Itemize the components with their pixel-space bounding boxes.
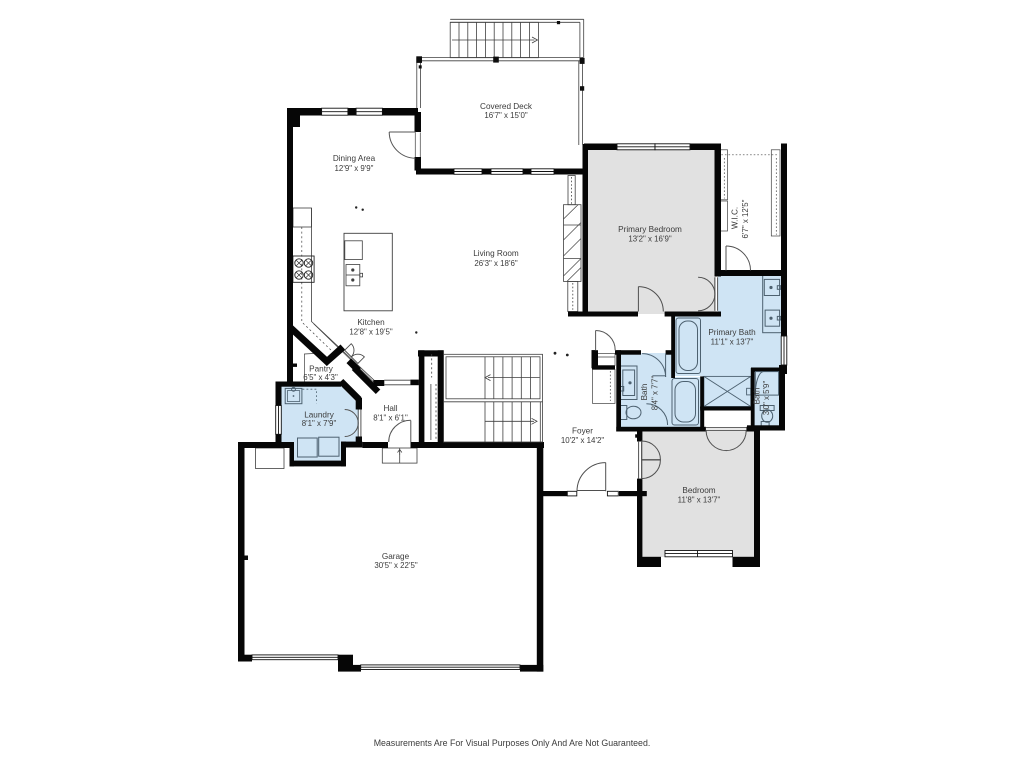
svg-text:Kitchen: Kitchen xyxy=(357,318,385,327)
svg-text:Bath: Bath xyxy=(640,383,649,400)
svg-text:8'1" x 7'9": 8'1" x 7'9" xyxy=(302,419,337,428)
svg-text:Hall: Hall xyxy=(383,404,397,413)
svg-text:6'7" x 12'5": 6'7" x 12'5" xyxy=(741,199,750,238)
svg-text:Measurements Are For Visual Pu: Measurements Are For Visual Purposes Onl… xyxy=(374,738,651,748)
svg-text:Living Room: Living Room xyxy=(473,249,519,258)
svg-text:12'9" x 9'9": 12'9" x 9'9" xyxy=(335,164,374,173)
svg-text:Pantry: Pantry xyxy=(309,365,334,374)
svg-text:10'2" x 14'2": 10'2" x 14'2" xyxy=(561,436,604,445)
svg-text:6'5" x 4'3": 6'5" x 4'3" xyxy=(303,373,338,382)
svg-text:W.I.C.: W.I.C. xyxy=(731,207,740,229)
svg-text:Bedroom: Bedroom xyxy=(682,486,715,495)
svg-text:Garage: Garage xyxy=(382,552,410,561)
svg-text:Primary Bath: Primary Bath xyxy=(708,328,756,337)
svg-text:30'5" x 22'5": 30'5" x 22'5" xyxy=(374,561,417,570)
svg-text:Bath: Bath xyxy=(753,387,762,404)
svg-text:13'2" x 16'9": 13'2" x 16'9" xyxy=(628,235,671,244)
svg-text:8'4" x 7'7": 8'4" x 7'7" xyxy=(651,376,660,411)
svg-text:12'8" x 19'5": 12'8" x 19'5" xyxy=(349,328,392,337)
svg-text:8'1" x 6'1": 8'1" x 6'1" xyxy=(373,414,408,423)
svg-text:Primary Bedroom: Primary Bedroom xyxy=(618,225,682,234)
svg-text:Foyer: Foyer xyxy=(572,427,593,436)
svg-text:11'8" x 13'7": 11'8" x 13'7" xyxy=(678,496,721,505)
svg-text:Covered Deck: Covered Deck xyxy=(480,102,533,111)
svg-text:26'3" x 18'6": 26'3" x 18'6" xyxy=(474,259,517,268)
svg-text:16'7" x 15'0": 16'7" x 15'0" xyxy=(484,111,527,120)
svg-text:Dining Area: Dining Area xyxy=(333,154,376,163)
svg-text:3'0" x 5'9": 3'0" x 5'9" xyxy=(762,381,771,416)
svg-text:11'1" x 13'7": 11'1" x 13'7" xyxy=(711,338,754,347)
